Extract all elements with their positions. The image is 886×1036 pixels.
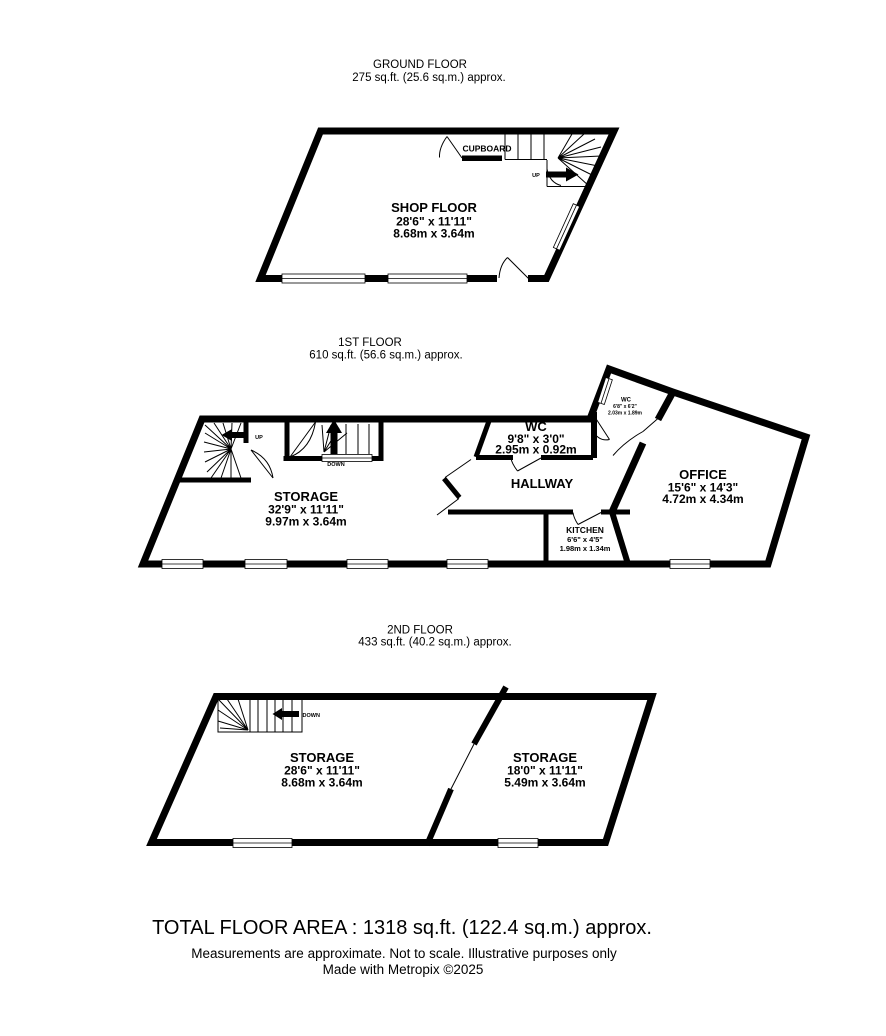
ground-staircase: UP: [505, 134, 601, 187]
hallway-label: HALLWAY: [511, 476, 574, 491]
second-staircase: DOWN: [218, 699, 320, 732]
door-leaf: [597, 420, 610, 440]
kitchen-label: KITCHEN: [566, 525, 604, 535]
cupboard-door-arc: [439, 137, 447, 158]
up-label: UP: [255, 435, 263, 441]
cupboard-label: CUPBOARD: [462, 144, 511, 154]
floorplan-canvas: GROUND FLOOR 275 sq.ft. (25.6 sq.m.) app…: [0, 0, 886, 1036]
storage-left-metric: 8.68m x 3.64m: [281, 776, 362, 790]
ground-floor-area: 275 sq.ft. (25.6 sq.m.) approx.: [352, 72, 505, 84]
window: [553, 204, 579, 251]
shop-floor-metric: 8.68m x 3.64m: [393, 227, 474, 241]
down-arrow-icon: [331, 431, 338, 454]
door-leaf: [643, 418, 659, 432]
door-leaf: [251, 450, 273, 478]
total-floor-area: TOTAL FLOOR AREA : 1318 sq.ft. (122.4 sq…: [152, 917, 652, 939]
shop-floor-label: SHOP FLOOR: [391, 200, 477, 215]
up-arrow-icon: [232, 432, 248, 438]
small-wc-metric: 2.03m x 1.89m: [608, 411, 642, 417]
partition-wall: [427, 687, 506, 845]
small-wc-imperial: 6'8" x 6'2": [613, 404, 637, 410]
up-arrow-head-icon: [222, 429, 233, 441]
footer: TOTAL FLOOR AREA : 1318 sq.ft. (122.4 sq…: [152, 917, 652, 977]
cupboard-door-leaf: [447, 137, 462, 159]
metropix-credit: Made with Metropix ©2025: [323, 962, 484, 977]
storage-metric: 9.97m x 3.64m: [265, 515, 346, 529]
winder-treads: [218, 699, 248, 730]
up-arrow-icon: [546, 172, 566, 178]
second-floor-title: 2ND FLOOR: [387, 625, 453, 637]
up-arrow-head-icon: [566, 168, 579, 182]
ground-floor-title: GROUND FLOOR: [373, 59, 467, 71]
first-floor-area: 610 sq.ft. (56.6 sq.m.) approx.: [309, 350, 462, 362]
storage-right-metric: 5.49m x 3.64m: [504, 776, 585, 790]
up-label: UP: [532, 173, 540, 179]
ground-floor-plan: GROUND FLOOR 275 sq.ft. (25.6 sq.m.) app…: [261, 59, 615, 285]
winder-treads: [204, 423, 241, 478]
partition-opening: [451, 744, 474, 789]
down-arrow-icon: [282, 711, 299, 717]
floorplan-page: GROUND FLOOR 275 sq.ft. (25.6 sq.m.) app…: [0, 0, 886, 1036]
wc-metric: 2.95m x 0.92m: [495, 443, 576, 457]
door-arc: [573, 513, 578, 525]
small-wc-label: WC: [621, 398, 632, 404]
cupboard-wall: [462, 156, 502, 162]
down-label: DOWN: [327, 462, 344, 468]
first-floor-title: 1ST FLOOR: [338, 337, 402, 349]
door-leaf: [290, 422, 316, 457]
second-floor-plan: 2ND FLOOR 433 sq.ft. (40.2 sq.m.) approx…: [152, 625, 653, 848]
kitchen-imperial: 6'6" x 4'5": [567, 535, 603, 544]
door-leaf: [518, 458, 542, 471]
kitchen-metric: 1.98m x 1.34m: [560, 544, 611, 553]
disclaimer: Measurements are approximate. Not to sca…: [191, 946, 617, 961]
door-leaf: [578, 513, 601, 525]
second-floor-area: 433 sq.ft. (40.2 sq.m.) approx.: [358, 637, 511, 649]
down-label: DOWN: [303, 713, 320, 719]
office-metric: 4.72m x 4.34m: [662, 492, 743, 506]
storage-hallway-opening: [437, 460, 471, 516]
first-floor-plan: 1ST FLOOR 610 sq.ft. (56.6 sq.m.) approx…: [143, 337, 806, 569]
down-arrow-head-icon: [273, 708, 283, 720]
first-down-staircase: DOWN: [284, 419, 384, 468]
